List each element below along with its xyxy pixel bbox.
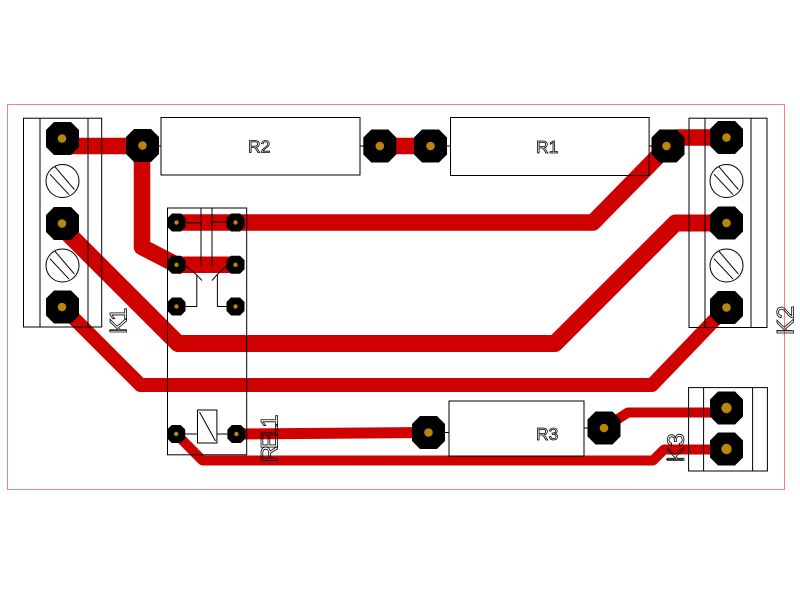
svg-text:REL1: REL1 <box>257 415 284 463</box>
svg-text:R1: R1 <box>536 137 558 157</box>
svg-text:R2: R2 <box>248 137 270 157</box>
svg-text:R3: R3 <box>536 424 558 444</box>
svg-text:K3: K3 <box>663 433 690 462</box>
